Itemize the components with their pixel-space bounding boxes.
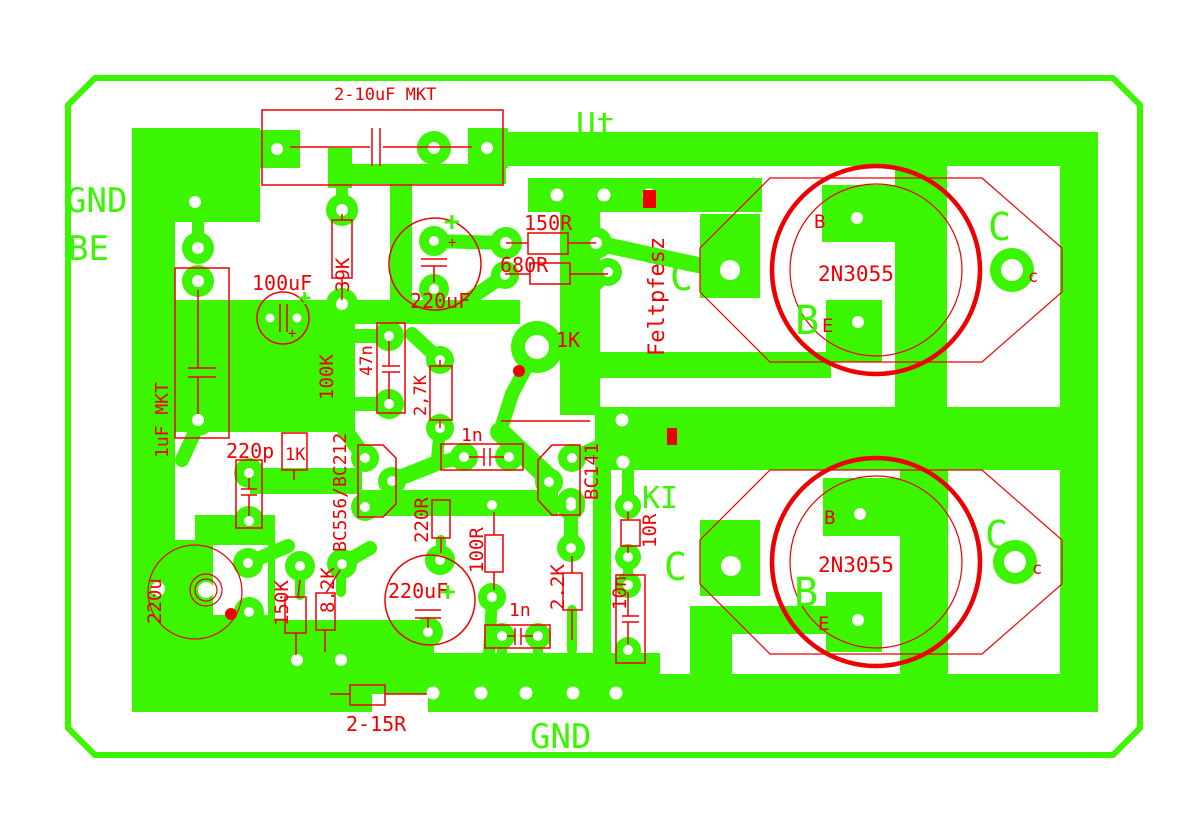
- label-r680r: 680R: [500, 253, 549, 277]
- label-r220r: 220R: [411, 497, 433, 543]
- label-c-top-inner: C: [670, 255, 693, 299]
- label-cap-input: 2-10uF MKT: [334, 85, 436, 105]
- label-cap-220uf-top: 220uF: [410, 289, 470, 313]
- label-cap-1n-bot: 1n: [509, 600, 531, 621]
- label-r150k: 150K: [271, 580, 293, 626]
- label-cap-100uf: 100uF: [252, 271, 312, 295]
- label-cap-1n-top: 1n: [461, 425, 483, 446]
- label-bc141: BC141: [581, 443, 603, 500]
- pcb-layout-image: GND BE Ut C C B KI C C B GND + + + 2-10u…: [0, 0, 1203, 833]
- label-ut: Ut: [576, 105, 616, 144]
- label-ki: KI: [642, 481, 678, 516]
- label-r1k-box: 1K: [285, 445, 306, 465]
- label-cap-220p: 220p: [226, 439, 274, 463]
- label-q2: 2N3055: [818, 553, 894, 577]
- label-cap-10n: 10n: [609, 576, 631, 610]
- label-feltpfesz: Feltpfesz: [645, 237, 670, 356]
- label-q2-b: B: [824, 507, 835, 529]
- label-r8k2: 8.2K: [317, 567, 339, 613]
- label-r100k: 100K: [316, 354, 338, 400]
- silk-mark-top: [643, 190, 656, 208]
- label-r150r: 150R: [524, 211, 573, 235]
- label-q1-e: E: [822, 315, 833, 337]
- label-q1-c: c: [1028, 267, 1038, 287]
- outline-r10r: [621, 520, 640, 546]
- label-r2-15r: 2-15R: [346, 712, 407, 736]
- silk-mark-mid: [667, 428, 677, 445]
- label-b-bot: B: [794, 570, 818, 616]
- plus-small-220uf: +: [448, 235, 456, 251]
- label-q2-c: c: [1032, 559, 1042, 579]
- label-c-bot-outer: C: [985, 513, 1008, 557]
- silk-dot-1: [513, 365, 525, 377]
- label-cap-220u: 220u: [144, 578, 166, 624]
- plus-220uf-top: +: [444, 207, 460, 237]
- label-be: BE: [68, 229, 109, 269]
- label-cap-1uf: 1uF MKT: [152, 382, 173, 458]
- label-q1: 2N3055: [818, 262, 894, 286]
- label-r2k7: 2,7K: [411, 374, 431, 416]
- label-q1-b: B: [814, 211, 825, 233]
- plus-small-100uf: +: [288, 326, 296, 342]
- label-r10r: 10R: [639, 513, 661, 548]
- label-r2k2: 2.2K: [547, 564, 569, 610]
- label-c-top-outer: C: [988, 205, 1011, 249]
- label-b-top: B: [795, 298, 819, 344]
- label-q2-e: E: [818, 613, 829, 635]
- label-c-bot-inner: C: [664, 545, 687, 589]
- silk-dot-2: [225, 608, 237, 620]
- outline-r2k7: [430, 366, 452, 420]
- label-gnd-left: GND: [66, 181, 127, 221]
- pcb-svg: GND BE Ut C C B KI C C B GND + + + 2-10u…: [0, 0, 1203, 833]
- label-r100r: 100R: [466, 527, 488, 573]
- label-bc556: BC556/BC212: [330, 433, 351, 552]
- label-cap-220uf-bot: 220uF: [388, 579, 448, 603]
- label-gnd-bottom: GND: [530, 717, 591, 757]
- label-cap-47n: 47n: [357, 345, 377, 376]
- label-r1k-mid: 1K: [556, 328, 580, 352]
- label-r39k: 39K: [332, 257, 354, 292]
